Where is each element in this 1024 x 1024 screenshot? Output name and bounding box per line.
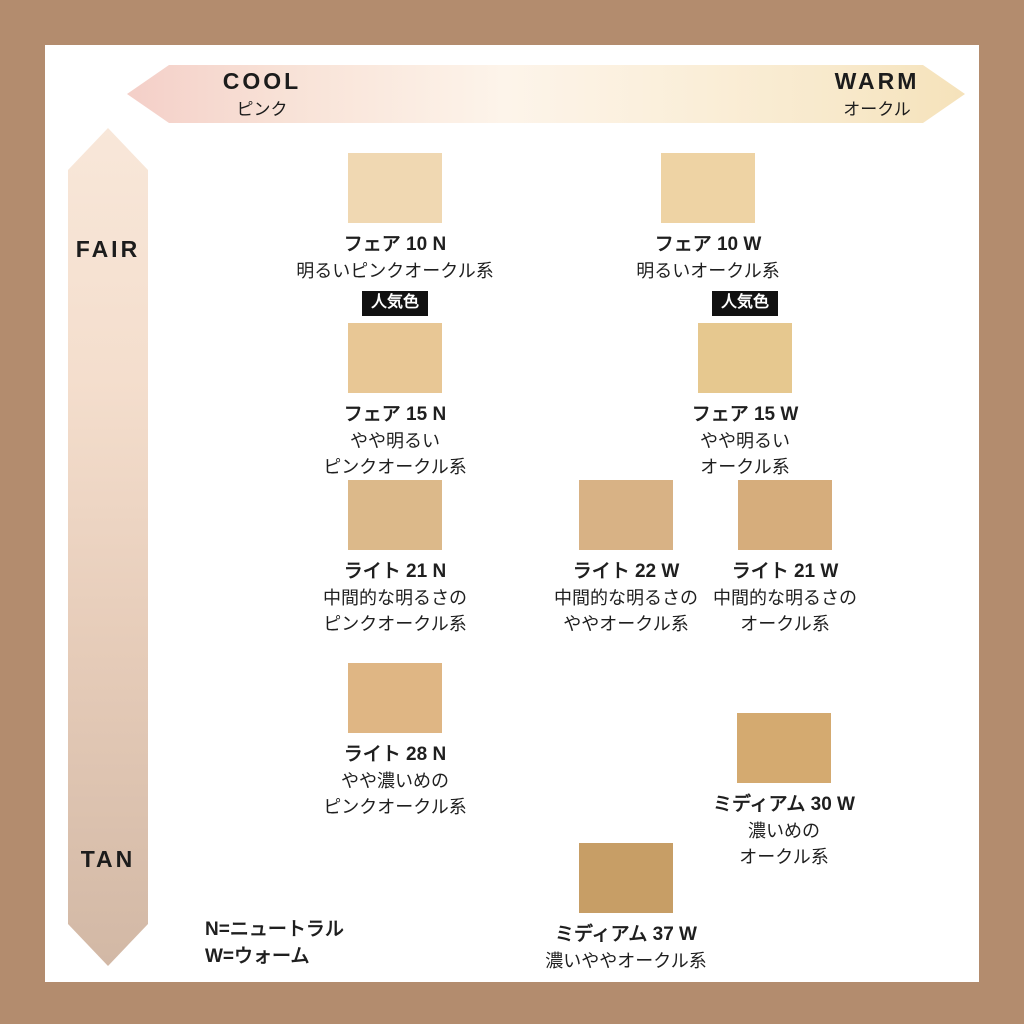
shade-desc: 明るいピンクオークル系: [296, 258, 493, 284]
shade-desc: 明るいオークル系: [636, 258, 779, 284]
shade-desc: オークル系: [700, 454, 789, 480]
shade-swatch: [661, 153, 755, 223]
shade-name: ライト 21 W: [732, 559, 839, 585]
shade-swatch: [698, 323, 792, 393]
shade-name: フェア 15 W: [692, 402, 799, 428]
shade-swatch: [738, 480, 832, 550]
shade-desc: やや濃いめの: [341, 768, 449, 794]
axis-label-cool: COOL: [182, 68, 342, 95]
shade-cell-light-21-w: ライト 21 W 中間的な明るさの オークル系: [670, 480, 900, 637]
shade-cell-fair-15-w: 人気色 フェア 15 W やや明るい オークル系: [630, 291, 860, 480]
shade-swatch: [348, 323, 442, 393]
shade-swatch: [737, 713, 831, 783]
shade-chart-page: COOL ピンク WARM オークル FAIR TAN フェア 10 N 明るい…: [0, 0, 1024, 1024]
shade-swatch: [348, 153, 442, 223]
axis-label-warm: WARM: [797, 68, 957, 95]
shade-name: ミディアム 30 W: [713, 792, 855, 818]
axis-sublabel-pink: ピンク: [182, 95, 342, 120]
axis-sublabel-ochre: オークル: [797, 95, 957, 120]
shade-desc: ピンクオークル系: [323, 454, 466, 480]
popular-badge: 人気色: [362, 291, 428, 316]
shade-desc: オークル系: [740, 611, 829, 637]
shade-swatch: [579, 480, 673, 550]
shade-desc: やや明るい: [350, 428, 440, 454]
shade-cell-light-28-n: ライト 28 N やや濃いめの ピンクオークル系: [280, 663, 510, 820]
shade-swatch: [348, 663, 442, 733]
legend: N=ニュートラル W=ウォーム: [205, 916, 344, 970]
shade-cell-fair-10-n: フェア 10 N 明るいピンクオークル系: [280, 153, 510, 284]
shade-desc: 中間的な明るさの: [323, 585, 467, 611]
legend-line-neutral: N=ニュートラル: [205, 916, 344, 943]
shade-cell-fair-10-w: フェア 10 W 明るいオークル系: [593, 153, 823, 284]
shade-cell-fair-15-n: 人気色 フェア 15 N やや明るい ピンクオークル系: [280, 291, 510, 480]
legend-line-warm: W=ウォーム: [205, 943, 344, 970]
shade-name: フェア 10 N: [344, 232, 446, 258]
shade-name: フェア 10 W: [655, 232, 762, 258]
shade-cell-light-21-n: ライト 21 N 中間的な明るさの ピンクオークル系: [280, 480, 510, 637]
shade-name: ライト 22 W: [573, 559, 680, 585]
axis-label-tan: TAN: [28, 846, 188, 873]
shade-desc: 濃いややオークル系: [545, 948, 706, 974]
axis-label-fair: FAIR: [28, 236, 188, 263]
shade-name: フェア 15 N: [344, 402, 446, 428]
popular-badge: 人気色: [712, 291, 778, 316]
shade-name: ミディアム 37 W: [555, 922, 697, 948]
shade-cell-medium-37-w: ミディアム 37 W 濃いややオークル系: [511, 843, 741, 974]
shade-name: ライト 21 N: [344, 559, 446, 585]
shade-desc: ピンクオークル系: [323, 611, 466, 637]
shade-name: ライト 28 N: [344, 742, 446, 768]
shade-swatch: [348, 480, 442, 550]
shade-desc: 中間的な明るさの: [713, 585, 857, 611]
shade-desc: ピンクオークル系: [323, 794, 466, 820]
shade-desc: オークル系: [739, 844, 828, 870]
shade-desc: やや明るい: [700, 428, 790, 454]
shade-swatch: [579, 843, 673, 913]
shade-desc: 濃いめの: [748, 818, 820, 844]
